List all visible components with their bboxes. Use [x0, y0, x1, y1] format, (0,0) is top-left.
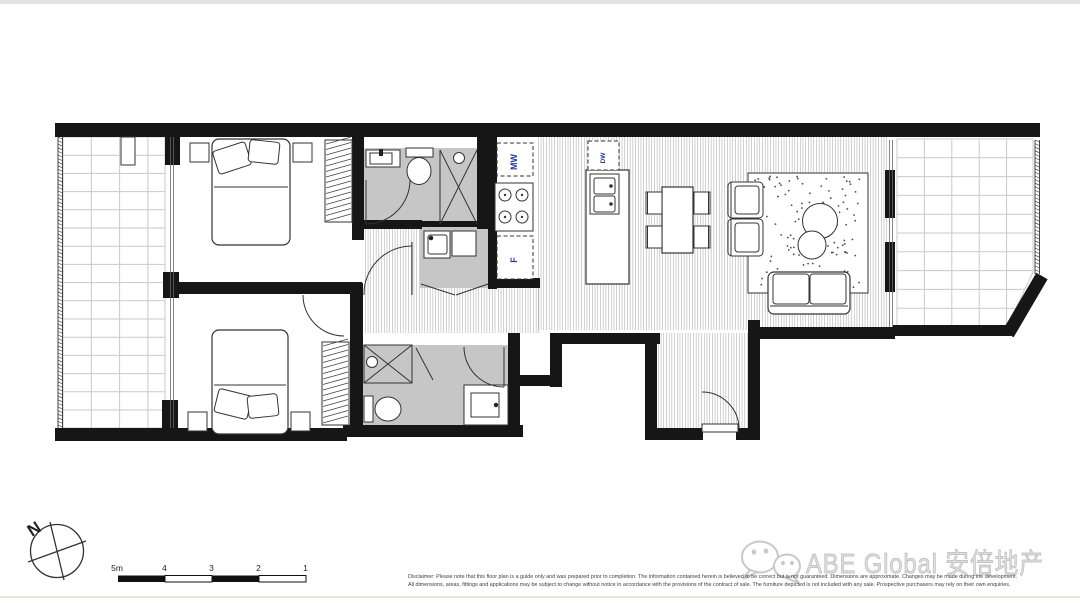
living-dining [646, 173, 868, 314]
disclaimer-line-2: All dimensions, areas, fittings and appl… [408, 582, 1080, 590]
north-label: N [24, 518, 45, 541]
footer-divider [0, 596, 1080, 598]
laundry-tap-icon [429, 236, 434, 241]
armchair [728, 219, 763, 256]
wardrobe-2 [322, 339, 349, 425]
scale-label-2: 2 [256, 563, 261, 573]
disclaimer-text: Disclaimer: Please note that this floor … [408, 574, 1080, 589]
kitchen: MW F DW [495, 141, 629, 284]
laundry-bench [452, 231, 476, 256]
wardrobe-1 [325, 137, 352, 222]
balcony-right-tiles [897, 139, 1033, 328]
bedroom-1-door-swing [364, 246, 412, 295]
north-compass: N [24, 518, 86, 580]
balcony-column [121, 137, 135, 165]
dishwasher-label: DW [600, 152, 607, 164]
angled-balcony-wall [1008, 276, 1042, 334]
balcony-right-railing [1035, 140, 1040, 275]
scale-label-1: 1 [303, 563, 308, 573]
entry-door-leaf [702, 424, 738, 432]
toilet-1-cistern [406, 148, 433, 157]
microwave-label: MW [509, 154, 519, 170]
toilet-1-bowl [407, 158, 431, 185]
bedside-table [188, 412, 207, 431]
vanity-1-tap-icon [379, 149, 383, 156]
pillow [248, 139, 280, 164]
dining-table [662, 187, 693, 253]
bedside-table [190, 143, 209, 162]
coffee-table-small [798, 231, 826, 259]
fridge-label: F [509, 257, 519, 263]
vanity-2-tap-icon [494, 403, 498, 407]
shower-2-head-icon [367, 357, 378, 368]
scale-label-5m: 5m [111, 563, 123, 573]
bedroom-2-door-swing [303, 295, 344, 336]
toilet-2-bowl [375, 397, 401, 421]
floor-plan-page: MW F DW [0, 0, 1080, 603]
bedroom-2 [188, 295, 349, 434]
toilet-2-cistern [364, 396, 373, 422]
balcony-glass-wall-right [890, 140, 893, 327]
floor-plan-drawing: MW F DW [0, 0, 1080, 603]
pillow [247, 393, 279, 418]
bedside-table [293, 143, 312, 162]
balcony-left-railing [58, 137, 63, 428]
balcony-left-tiles [63, 137, 165, 428]
armchair [728, 182, 763, 218]
walls [55, 123, 1042, 441]
scale-label-3: 3 [209, 563, 214, 573]
shower-1-head-icon [454, 153, 465, 164]
disclaimer-line-1: Disclaimer: Please note that this floor … [408, 574, 1080, 582]
bed-2 [212, 330, 288, 434]
scale-bar: 5m 4 3 2 1 [111, 563, 308, 582]
sofa [768, 272, 850, 314]
bedside-table [291, 412, 310, 431]
scale-label-4: 4 [162, 563, 167, 573]
